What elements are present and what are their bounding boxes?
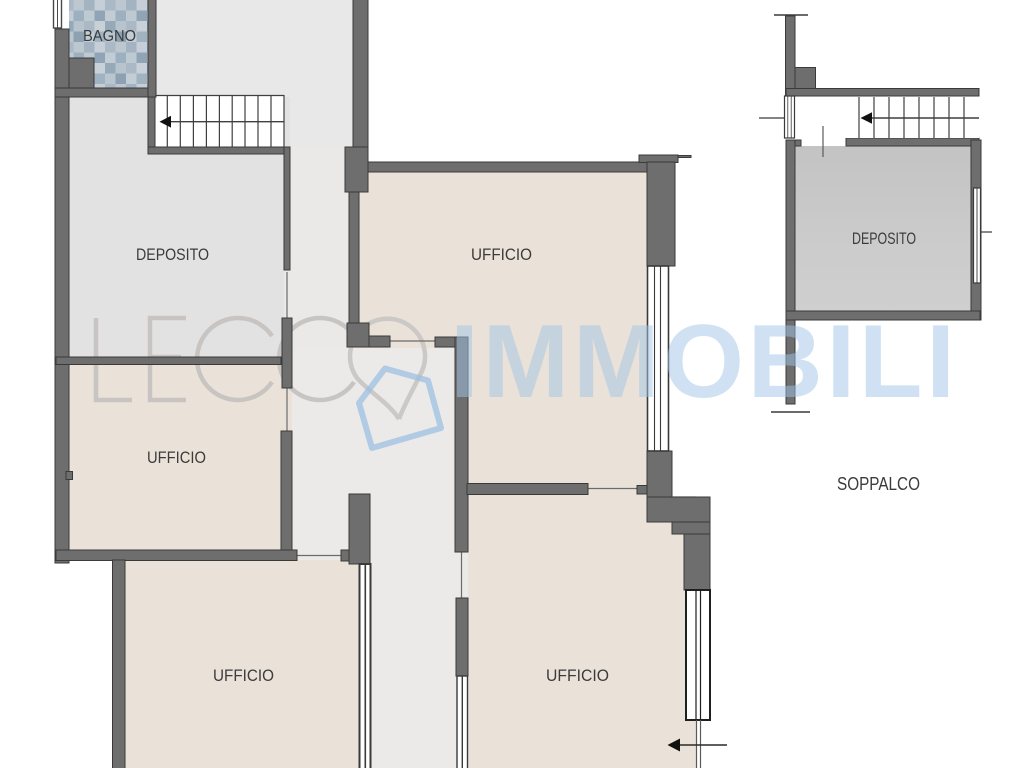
svg-text:BAGNO: BAGNO (83, 28, 136, 45)
svg-text:IMMOBILI: IMMOBILI (450, 304, 955, 420)
svg-text:UFFICIO: UFFICIO (546, 666, 609, 685)
svg-text:DEPOSITO: DEPOSITO (136, 245, 209, 264)
svg-text:DEPOSITO: DEPOSITO (852, 229, 916, 248)
svg-text:SOPPALCO: SOPPALCO (837, 474, 920, 494)
svg-text:UFFICIO: UFFICIO (213, 666, 274, 685)
svg-text:UFFICIO: UFFICIO (147, 448, 206, 467)
svg-text:UFFICIO: UFFICIO (471, 245, 532, 264)
